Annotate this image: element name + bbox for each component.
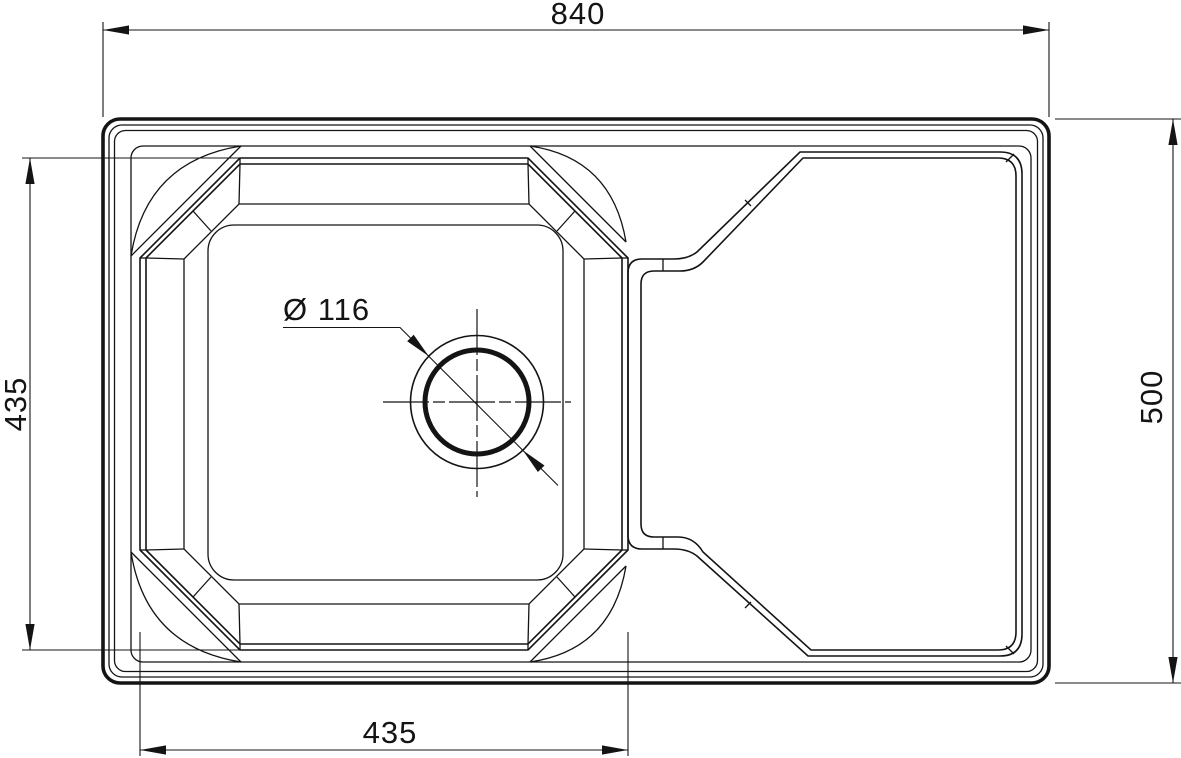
fold-chord-top-right <box>530 146 626 242</box>
dimension-overall-width: 840 <box>103 0 1049 117</box>
bowl-wall-base <box>184 204 584 604</box>
dimension-label-500: 500 <box>1134 370 1169 425</box>
drainer <box>628 152 1022 656</box>
arrowhead-up-icon <box>25 158 34 184</box>
dimension-bowl-depth: 435 <box>0 158 335 650</box>
dimension-drain-diameter: Ø 116 <box>283 292 558 486</box>
technical-drawing-canvas: 840 500 435 435 Ø 116 <box>0 0 1181 758</box>
drainer-outer-edge <box>628 152 1022 656</box>
dimension-label-drain-diameter: Ø 116 <box>283 292 370 327</box>
deck-edge <box>131 146 1031 662</box>
dimension-label-435-left: 435 <box>0 377 33 432</box>
fold-chord-bottom-left <box>131 552 241 662</box>
dimension-label-435-bottom: 435 <box>363 715 418 750</box>
dimension-label-840: 840 <box>551 0 606 31</box>
dimension-overall-depth: 500 <box>1055 119 1181 683</box>
bowl-corner-facets <box>146 164 622 644</box>
drainer-inner-edge <box>641 158 1016 650</box>
drainer-facet-ticks <box>663 154 1014 654</box>
bowl <box>140 158 628 650</box>
sink-drawing: 840 500 435 435 Ø 116 <box>0 0 1181 758</box>
arrowhead-right-icon <box>602 745 628 754</box>
arrowhead-down-icon <box>25 624 34 650</box>
arrowhead-right-icon <box>1023 25 1049 34</box>
arrowhead-down-icon <box>1168 657 1177 683</box>
fold-chord-top-left <box>131 146 241 256</box>
arrowhead-left-icon <box>140 745 166 754</box>
fold-chord-bottom-right <box>530 566 626 662</box>
arrowhead-left-icon <box>103 25 129 34</box>
deck-corner-folds <box>131 146 626 662</box>
bowl-opening-inner <box>146 164 622 644</box>
rim-offset-line-1 <box>109 125 1043 677</box>
arrowhead-up-icon <box>1168 119 1177 145</box>
leader-line <box>283 328 558 486</box>
